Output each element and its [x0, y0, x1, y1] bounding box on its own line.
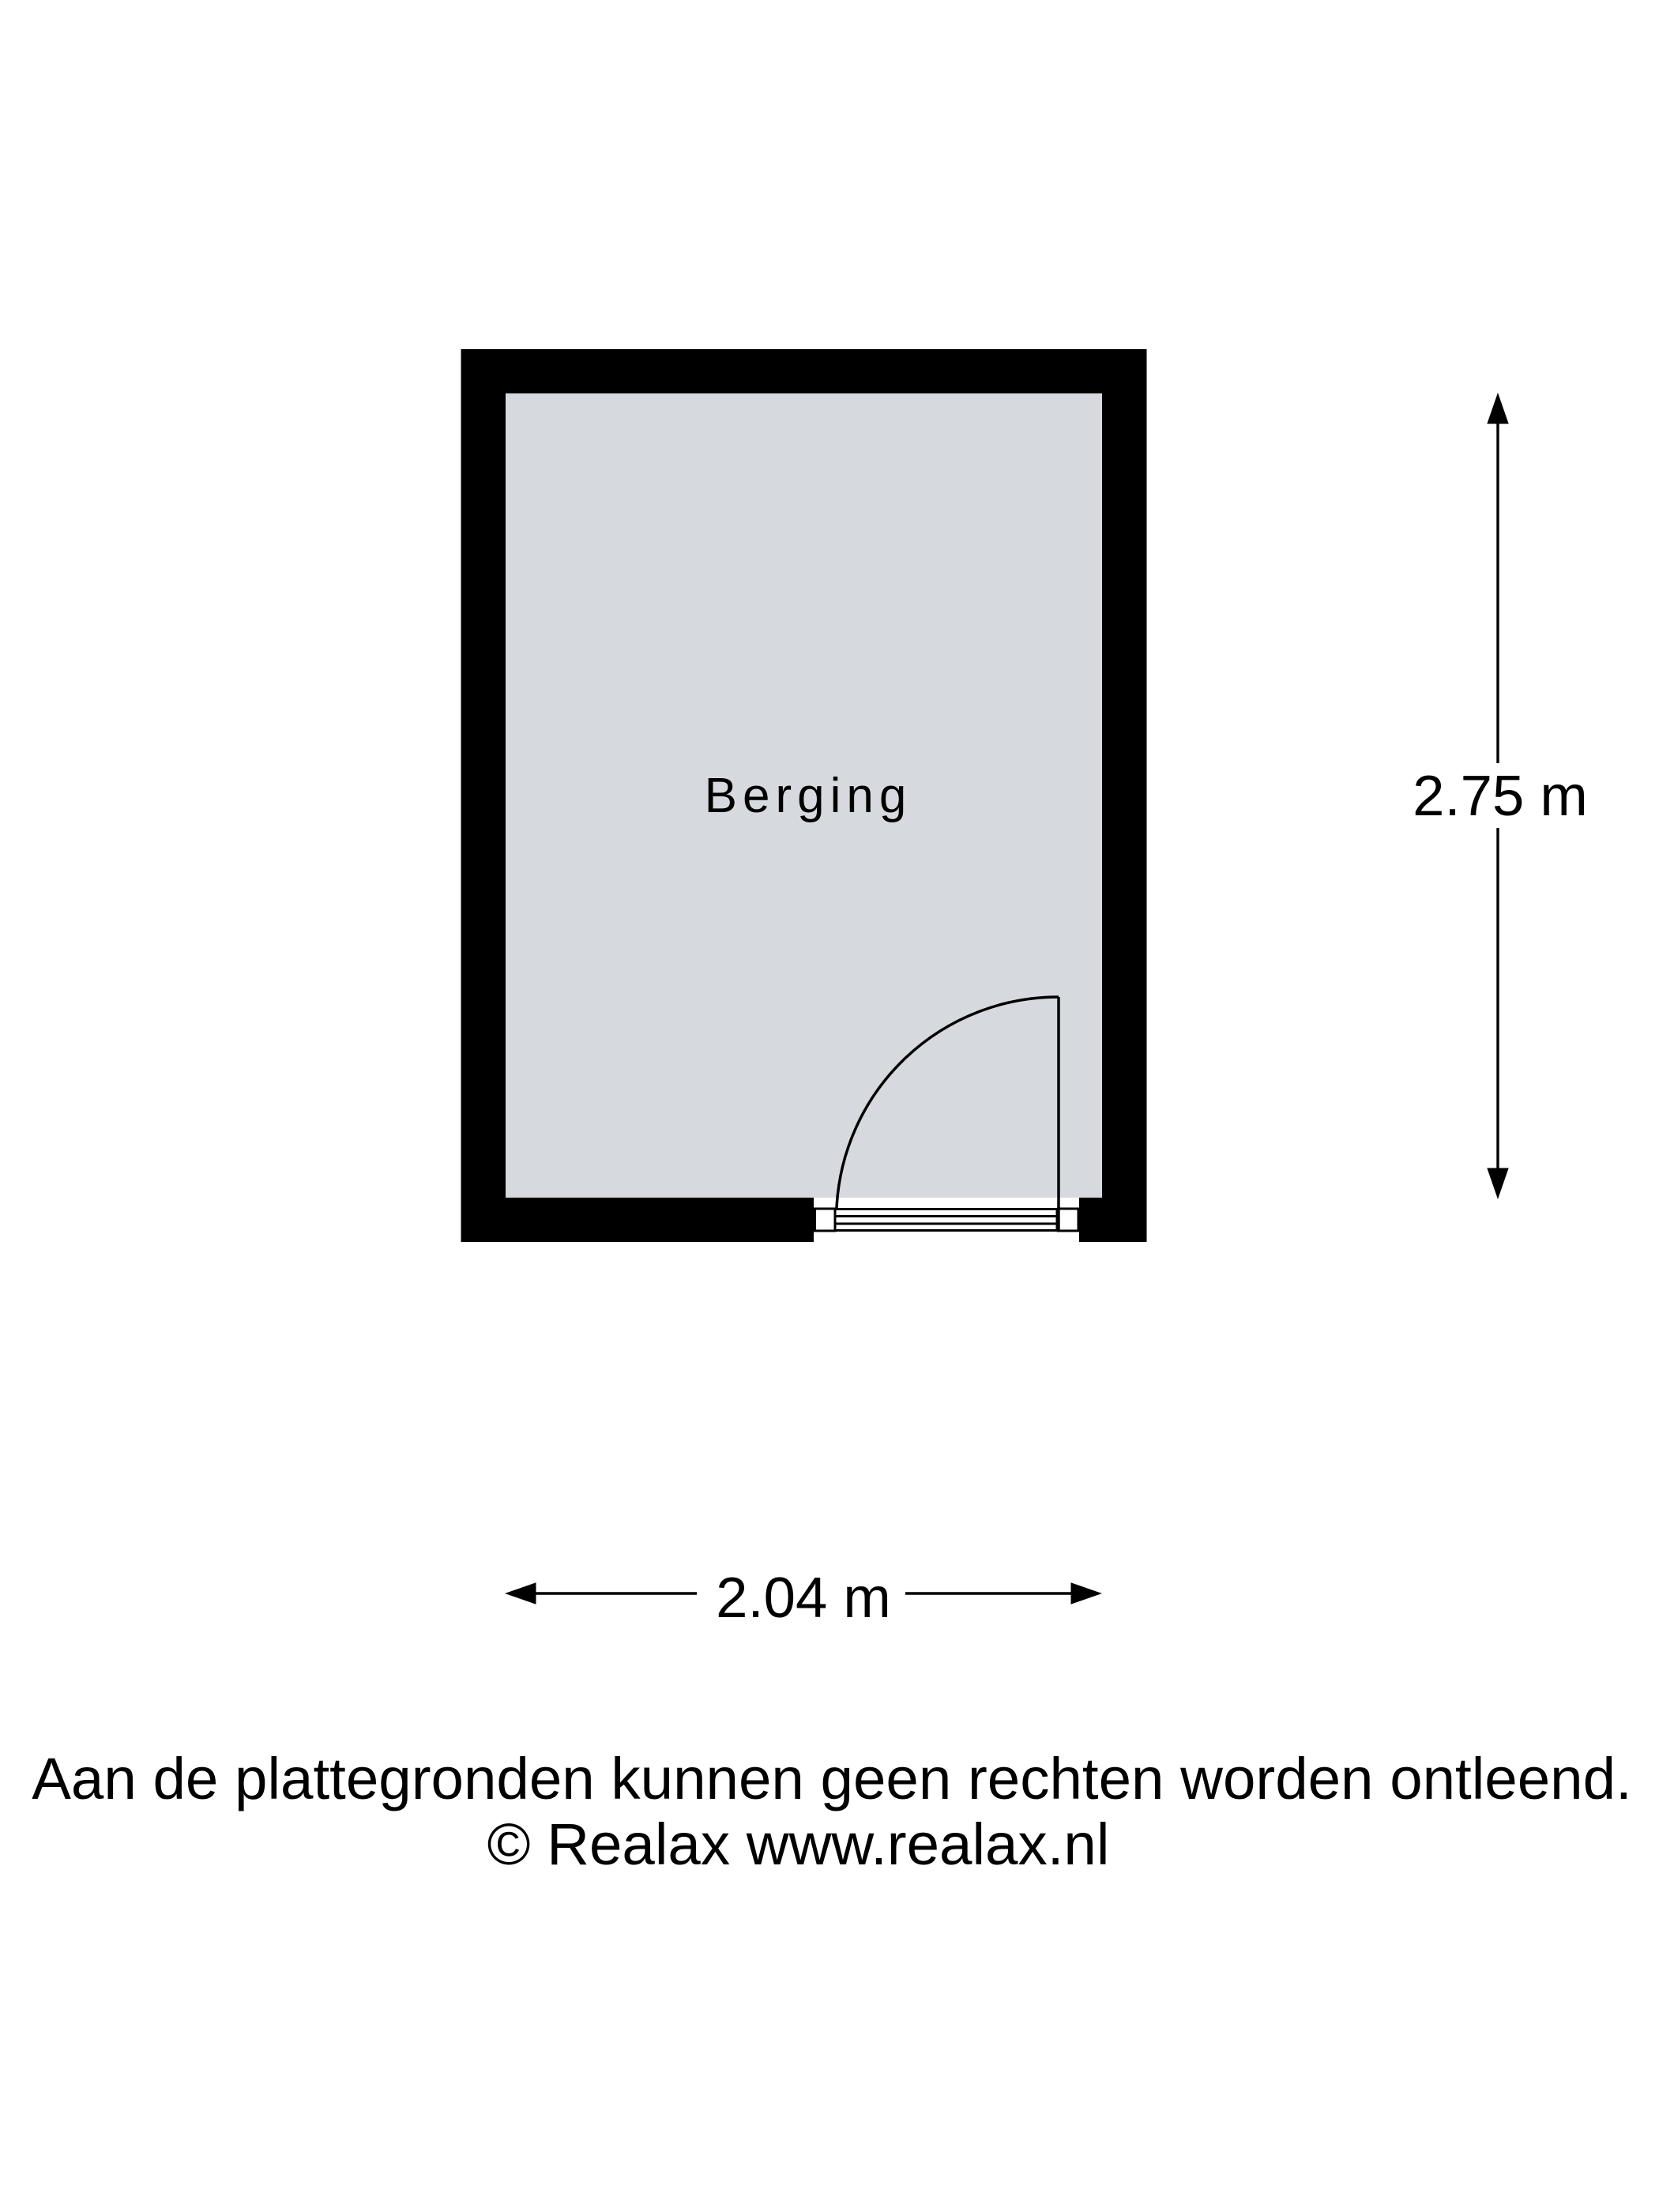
svg-text:Aan de plattegronden kunnen ge: Aan de plattegronden kunnen geen rechten… [32, 1746, 1632, 1811]
svg-text:Berging: Berging [705, 769, 912, 823]
svg-text:2.04 m: 2.04 m [716, 1566, 891, 1630]
svg-text:© Realax www.realax.nl: © Realax www.realax.nl [487, 1811, 1110, 1877]
svg-text:2.75 m: 2.75 m [1413, 764, 1588, 828]
